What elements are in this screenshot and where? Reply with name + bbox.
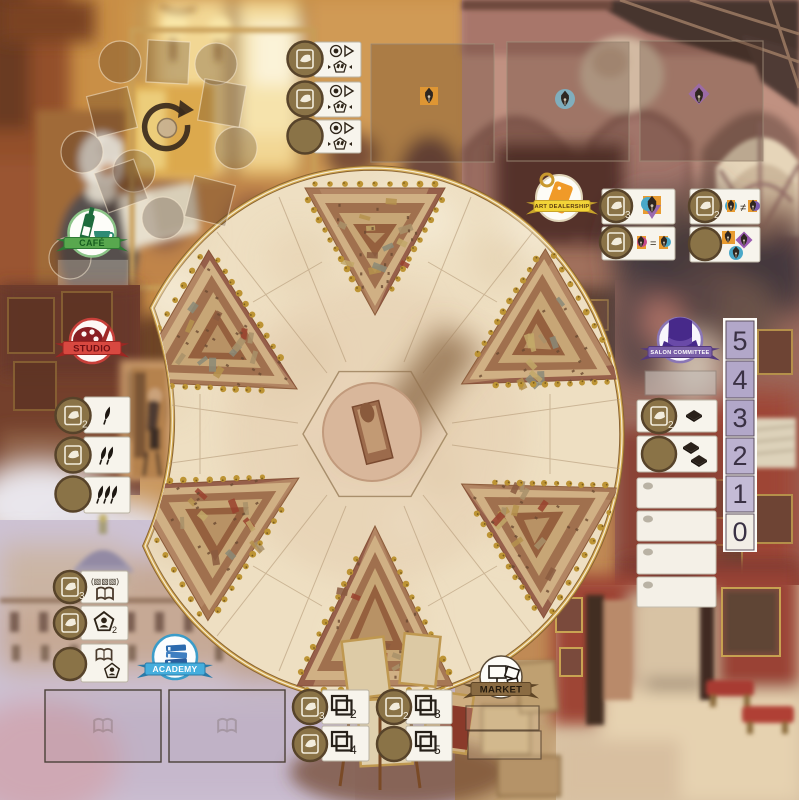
svg-text:3: 3: [79, 591, 85, 602]
svg-text:3: 3: [319, 711, 325, 722]
svg-text:1: 1: [732, 479, 747, 509]
svg-text:4: 4: [350, 743, 357, 757]
svg-text:=: =: [650, 238, 656, 250]
svg-text:2: 2: [714, 210, 720, 221]
svg-text:4: 4: [732, 365, 747, 395]
svg-text:2: 2: [82, 420, 88, 431]
svg-text:(▧▧▧): (▧▧▧): [91, 577, 119, 586]
svg-text:CAFÉ: CAFÉ: [79, 238, 105, 248]
svg-text:3: 3: [732, 403, 747, 433]
svg-text:2: 2: [668, 420, 674, 431]
svg-text:2: 2: [350, 707, 357, 721]
svg-text:0: 0: [732, 517, 747, 547]
svg-text:≠: ≠: [740, 202, 746, 214]
svg-text:5: 5: [732, 326, 747, 356]
svg-text:5: 5: [434, 743, 441, 757]
svg-text:SALON COMMITTEE: SALON COMMITTEE: [650, 350, 709, 356]
svg-text:3: 3: [434, 707, 441, 721]
svg-text:2: 2: [732, 441, 747, 471]
svg-text:2: 2: [403, 711, 409, 722]
svg-text:3: 3: [625, 210, 631, 221]
svg-text:ACADEMY: ACADEMY: [152, 664, 197, 674]
svg-text:ART DEALERSHIP: ART DEALERSHIP: [534, 204, 589, 210]
svg-text:STUDIO: STUDIO: [73, 343, 111, 354]
svg-text:MARKET: MARKET: [480, 684, 522, 695]
svg-text:2: 2: [112, 625, 117, 635]
